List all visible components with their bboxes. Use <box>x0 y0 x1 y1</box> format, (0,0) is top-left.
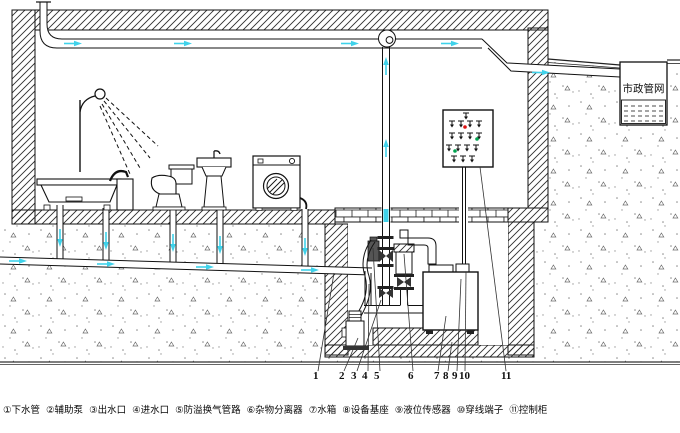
legend-item-11: ⑪控制柜 <box>509 402 547 416</box>
storage-tank <box>423 264 478 334</box>
municipal-connection-pipe <box>482 39 620 77</box>
shower-head-icon <box>95 89 105 99</box>
control-cabinet <box>443 110 493 167</box>
discharge-riser-pipe <box>382 47 391 306</box>
shower <box>80 89 158 174</box>
callout-7: 7 <box>434 371 440 382</box>
soil-gap <box>534 222 548 362</box>
tank-foot <box>426 330 433 334</box>
callout-1: 1 <box>313 371 319 382</box>
indicator-green <box>475 137 479 141</box>
ceiling-slab <box>35 10 548 30</box>
indicator-green <box>453 149 457 153</box>
callout-6: 6 <box>408 371 414 382</box>
sewage-station-diagram: 市政管网 1 2 3 4 5 6 7 8 9 10 11 ①下水管 ②辅助泵 ③… <box>0 0 680 433</box>
right-wall <box>528 28 548 208</box>
callout-8: 8 <box>443 371 449 382</box>
pit-right-wall <box>508 222 534 355</box>
sink-faucet-icon <box>214 151 220 154</box>
legend-item-6: ⑥杂物分离器 <box>247 402 303 416</box>
toilet <box>151 165 194 210</box>
cable-terminal <box>456 264 469 272</box>
washer-knob <box>289 158 294 163</box>
legend-item-5: ⑤防溢换气管路 <box>175 402 241 416</box>
legend-item-1: ①下水管 <box>3 402 40 416</box>
pit-horizontal-pipe <box>364 306 424 314</box>
legend: ①下水管 ②辅助泵 ③出水口 ④进水口 ⑤防溢换气管路 ⑥杂物分离器 ⑦水箱 ⑧… <box>3 402 678 416</box>
bathtub <box>37 171 133 210</box>
legend-item-10: ⑩穿线端子 <box>457 402 504 416</box>
shower-spray <box>100 98 158 174</box>
legend-item-9: ⑨液位传感器 <box>395 402 451 416</box>
ground-bottom-line <box>0 362 680 365</box>
anti-backflow-loop <box>379 30 396 47</box>
legend-item-7: ⑦水箱 <box>309 402 337 416</box>
legend-item-3: ③出水口 <box>89 402 126 416</box>
callout-3: 3 <box>351 371 357 382</box>
legend-item-8: ⑧设备基座 <box>342 402 389 416</box>
pit-cover-bricks <box>335 208 508 222</box>
diagram-canvas <box>0 0 680 433</box>
indicator-red <box>463 125 467 129</box>
washer-knob <box>258 159 263 163</box>
left-wall <box>12 10 35 224</box>
callout-2: 2 <box>339 371 345 382</box>
washing-machine <box>253 156 306 211</box>
tank-lid <box>429 265 453 272</box>
callout-10: 10 <box>459 371 470 382</box>
legend-item-4: ④进水口 <box>132 402 169 416</box>
tank-foot <box>467 330 474 334</box>
washer-drain-hose <box>300 198 306 209</box>
riser-flow-highlight <box>384 209 389 222</box>
soil-left <box>0 224 325 362</box>
pedestal-sink <box>197 151 231 210</box>
callout-5: 5 <box>374 371 380 382</box>
callout-11: 11 <box>501 371 511 382</box>
legend-item-2: ②辅助泵 <box>46 402 83 416</box>
callout-4: 4 <box>362 371 368 382</box>
callout-9: 9 <box>452 371 458 382</box>
municipal-network-label: 市政管网 <box>620 81 667 96</box>
wall-pit-junction <box>508 208 548 222</box>
